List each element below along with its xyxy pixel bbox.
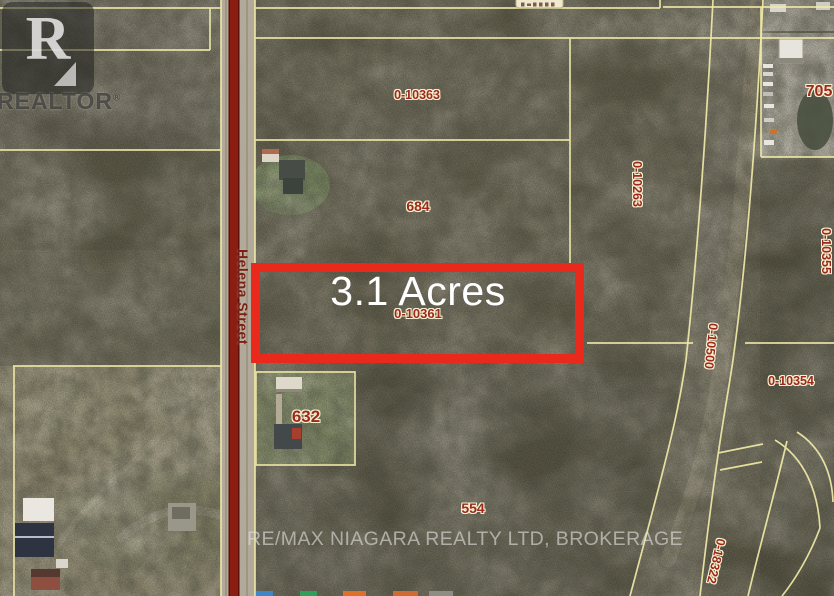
logo-fragment-gray: [429, 591, 453, 596]
highlighted-parcel-id: 0-10361: [252, 305, 584, 323]
warehouse-shadow: [779, 58, 803, 63]
realtor-wordmark-text: REALTOR: [0, 88, 113, 114]
parcel-label-0-10355: 0-10355: [819, 228, 833, 274]
dark-barn: [15, 523, 54, 557]
small-shed: [56, 559, 68, 568]
logo-fragment-green: [300, 591, 317, 596]
parcel-id-value: 0-10361: [394, 306, 442, 321]
farm-house-roof: [31, 569, 60, 577]
logo-fragment-blue: [256, 591, 273, 596]
clipped-parcel-label: [516, 0, 563, 8]
parcel-label-632: 632: [292, 407, 320, 427]
street-name-label: Helena Street: [235, 249, 251, 345]
shed-roof: [262, 149, 279, 154]
realtor-r-letter: R: [2, 4, 94, 92]
parcel-label-0-10263: 0-10263: [630, 161, 644, 207]
house-red-section: [292, 428, 301, 439]
parcel-label-0-10354: 0-10354: [768, 374, 814, 388]
road-track: [225, 0, 227, 596]
registered-symbol: ®: [113, 92, 121, 103]
realtor-watermark: R REALTOR®: [2, 2, 94, 94]
yard-clutter: [770, 4, 786, 12]
white-barn: [23, 498, 54, 521]
walkway: [276, 394, 282, 424]
house-roof: [279, 160, 305, 180]
parcel-label-684: 684: [406, 198, 429, 214]
barn-ridge: [15, 536, 54, 538]
yard-clutter: [800, 10, 812, 16]
realtor-wordmark: REALTOR®: [0, 88, 121, 115]
gray-shed-roof: [172, 507, 190, 519]
realtor-logo-icon: R: [2, 2, 94, 94]
shed-shadow: [276, 389, 302, 392]
parcel-label-0-10363: 0-10363: [394, 88, 440, 102]
road-edge: [229, 0, 231, 596]
parcel-label-705: 705: [806, 83, 833, 101]
logo-fragment-orange2: [393, 591, 418, 596]
brokerage-watermark: RE/MAX NIAGARA REALTY LTD, BROKERAGE: [247, 528, 683, 551]
yard-clutter: [816, 2, 830, 10]
house-roof: [283, 178, 303, 194]
parcel-label-554: 554: [461, 500, 484, 516]
aerial-parcel-map: 3.1 Acres 0-10361 Helena Street 0-10363 …: [0, 0, 834, 596]
logo-fragment-orange: [343, 591, 366, 596]
